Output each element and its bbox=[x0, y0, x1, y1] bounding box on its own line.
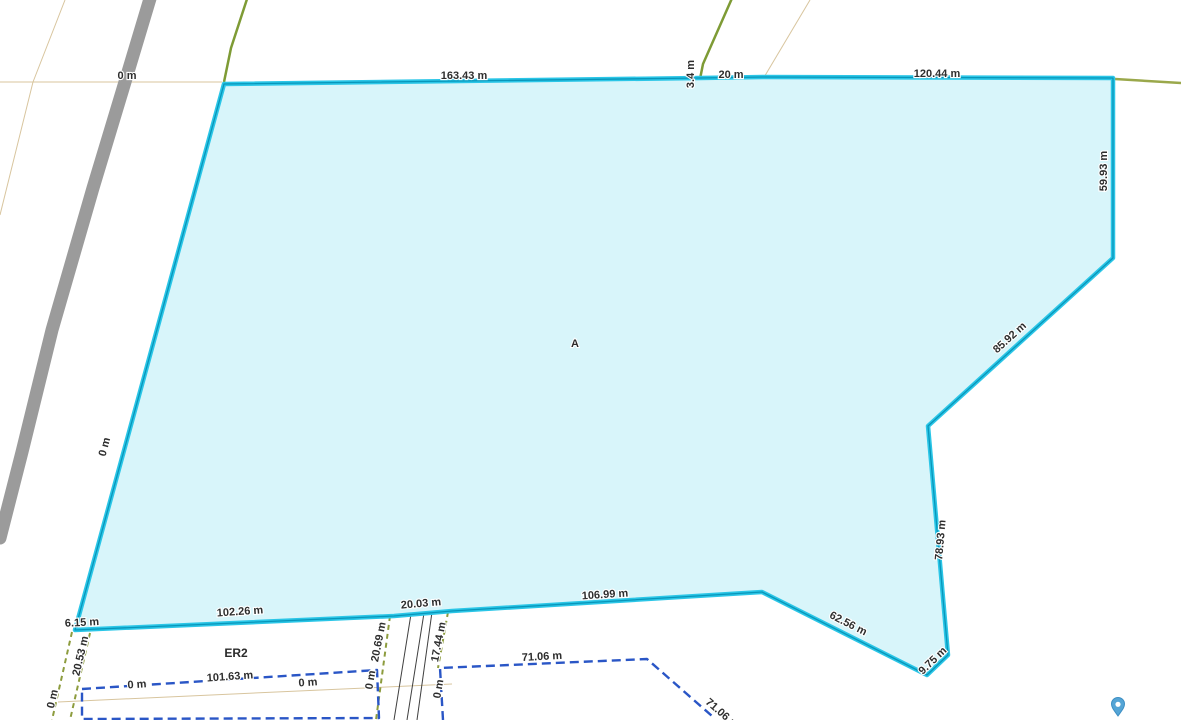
zone-label-er2: ER2 bbox=[224, 646, 248, 660]
measurement-label: 0 m bbox=[298, 676, 318, 689]
measurement-label: 3.4 m bbox=[685, 60, 697, 88]
measurement-label: 6.15 m bbox=[65, 616, 100, 630]
measurement-label: 20 m bbox=[718, 69, 743, 81]
map-viewport[interactable]: 0 m163.43 m3.4 m20 m120.44 m59.93 m85.92… bbox=[0, 0, 1181, 720]
measurement-label: 120.44 m bbox=[914, 68, 961, 80]
measurement-label: 0 m bbox=[127, 678, 147, 691]
measurement-label: 59.93 m bbox=[1098, 151, 1110, 192]
area-label-a: A bbox=[571, 338, 579, 350]
measurement-label: 71.06 m bbox=[522, 650, 563, 664]
measurement-label: 0 m bbox=[118, 70, 137, 82]
map-canvas[interactable]: 0 m163.43 m3.4 m20 m120.44 m59.93 m85.92… bbox=[0, 0, 1181, 720]
measurement-label: 163.43 m bbox=[441, 70, 488, 82]
